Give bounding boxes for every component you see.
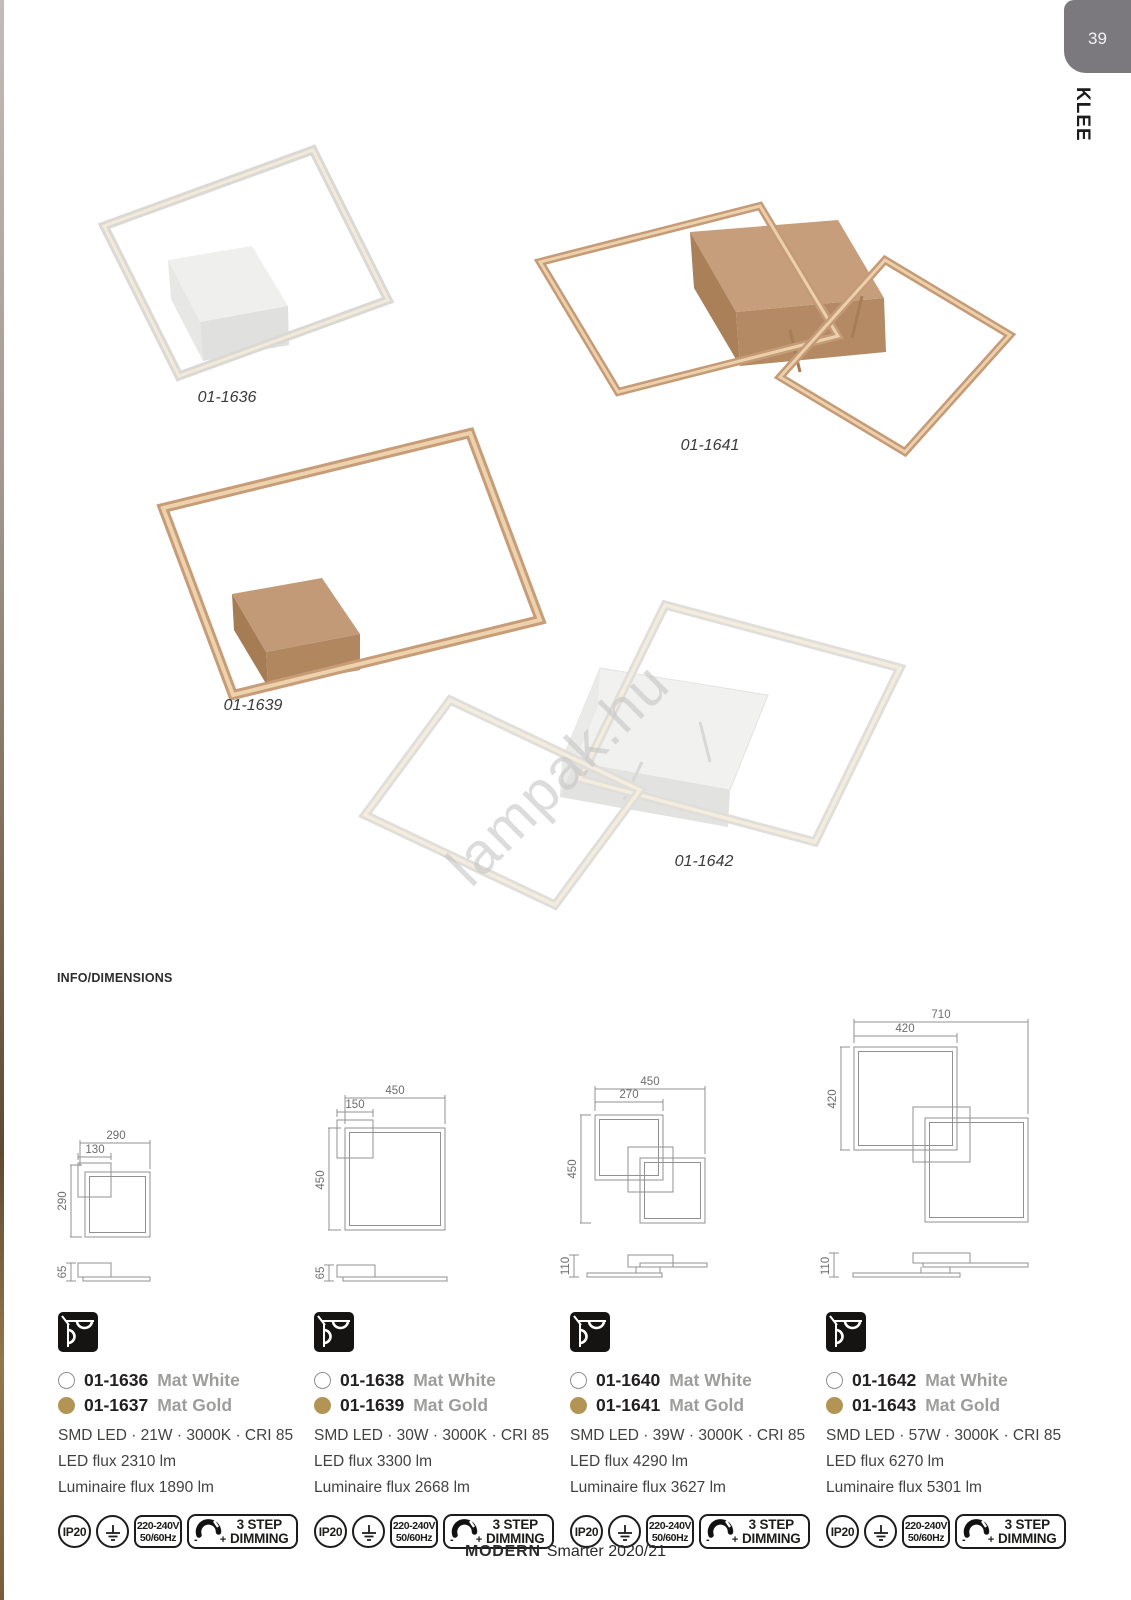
dimming-label: 3 STEP DIMMING <box>230 1518 289 1546</box>
product-image-01-1639 <box>163 433 540 695</box>
dim-1-total: 290 <box>106 1130 125 1142</box>
color-dot-gold <box>570 1397 587 1414</box>
catalog-page: 39 KLEE <box>0 0 1131 1600</box>
product-code: 01-1639 <box>340 1395 404 1416</box>
ground-icon <box>103 1522 123 1542</box>
ceiling-mount-icon <box>570 1312 610 1352</box>
product-image-01-1641 <box>540 206 1010 452</box>
product-code: 01-1636 <box>84 1370 148 1391</box>
product-label-01-1636: 01-1636 <box>198 389 257 406</box>
dimension-drawing-01-1640 <box>569 1086 707 1277</box>
spec-list: SMD LED · 39W · 3000K · CRI 85 LED flux … <box>570 1426 822 1498</box>
variant-row-white: 01-1636 Mat White <box>58 1370 310 1391</box>
spec-led-flux: LED flux 4290 lm <box>570 1452 822 1472</box>
spec-luminaire-flux: Luminaire flux 2668 lm <box>314 1478 566 1498</box>
dim-3-total: 450 <box>640 1076 659 1088</box>
dimmer-dial-icon: - + <box>194 1519 225 1545</box>
dimming-label: 3 STEP DIMMING <box>486 1518 545 1546</box>
variant-row-white: 01-1640 Mat White <box>570 1370 822 1391</box>
dim-1-depth: 65 <box>57 1266 69 1279</box>
dim-1-canopy: 130 <box>85 1144 104 1156</box>
spec-list: SMD LED · 21W · 3000K · CRI 85 LED flux … <box>58 1426 310 1498</box>
info-block-01-1640: 01-1640 Mat White 01-1641 Mat Gold SMD L… <box>570 1312 822 1549</box>
ceiling-mount-icon <box>314 1312 354 1352</box>
variant-row-white: 01-1638 Mat White <box>314 1370 566 1391</box>
ceiling-mount-icon <box>58 1312 98 1352</box>
finish-name: Mat White <box>669 1370 752 1391</box>
dim-3-height: 450 <box>567 1159 579 1178</box>
dim-4-height: 420 <box>827 1089 839 1108</box>
color-dot-white <box>826 1372 843 1389</box>
variant-row-gold: 01-1639 Mat Gold <box>314 1395 566 1416</box>
spec-led: SMD LED · 39W · 3000K · CRI 85 <box>570 1426 822 1446</box>
spec-luminaire-flux: Luminaire flux 5301 lm <box>826 1478 1078 1498</box>
finish-name: Mat White <box>157 1370 240 1391</box>
footer-brand: MODERN <box>465 1543 541 1560</box>
dimming-label: 3 STEP DIMMING <box>998 1518 1057 1546</box>
dimmer-dial-icon: - + <box>450 1519 481 1545</box>
ground-icon <box>615 1522 635 1542</box>
dim-4-total: 710 <box>931 1009 950 1021</box>
dimension-drawings: 290 130 290 65 450 150 450 65 450 270 45… <box>0 990 1131 1300</box>
product-code: 01-1643 <box>852 1395 916 1416</box>
product-code: 01-1642 <box>852 1370 916 1391</box>
color-dot-gold <box>826 1397 843 1414</box>
product-label-01-1639: 01-1639 <box>224 697 283 714</box>
ground-icon <box>871 1522 891 1542</box>
footer: MODERNSmarter 2020/21 <box>0 1543 1131 1561</box>
variant-row-gold: 01-1641 Mat Gold <box>570 1395 822 1416</box>
product-images: 01-1636 01-1641 01-1639 01-1642 lampak.h… <box>0 0 1131 950</box>
color-dot-gold <box>58 1397 75 1414</box>
color-dot-gold <box>314 1397 331 1414</box>
dimension-drawing-01-1636 <box>66 1140 150 1281</box>
dim-4-canopy: 420 <box>895 1023 914 1035</box>
dim-3-canopy: 270 <box>619 1089 638 1101</box>
ground-icon <box>359 1522 379 1542</box>
ceiling-mount-icon <box>826 1312 866 1352</box>
dim-2-canopy: 150 <box>345 1099 364 1111</box>
variant-row-white: 01-1642 Mat White <box>826 1370 1078 1391</box>
spec-list: SMD LED · 30W · 3000K · CRI 85 LED flux … <box>314 1426 566 1498</box>
dim-2-depth: 65 <box>315 1267 327 1280</box>
finish-name: Mat Gold <box>413 1395 488 1416</box>
dim-2-total: 450 <box>385 1085 404 1097</box>
product-label-01-1642: 01-1642 <box>675 853 734 870</box>
spec-luminaire-flux: Luminaire flux 3627 lm <box>570 1478 822 1498</box>
spec-list: SMD LED · 57W · 3000K · CRI 85 LED flux … <box>826 1426 1078 1498</box>
finish-name: Mat Gold <box>669 1395 744 1416</box>
dim-1-height: 290 <box>57 1191 69 1210</box>
spec-led: SMD LED · 30W · 3000K · CRI 85 <box>314 1426 566 1446</box>
dimmer-dial-icon: - + <box>706 1519 737 1545</box>
dimension-drawing-01-1642 <box>829 1019 1028 1277</box>
spec-luminaire-flux: Luminaire flux 1890 lm <box>58 1478 310 1498</box>
spec-led-flux: LED flux 2310 lm <box>58 1452 310 1472</box>
variant-row-gold: 01-1643 Mat Gold <box>826 1395 1078 1416</box>
dimmer-dial-icon: - + <box>962 1519 993 1545</box>
finish-name: Mat Gold <box>157 1395 232 1416</box>
info-block-01-1642: 01-1642 Mat White 01-1643 Mat Gold SMD L… <box>826 1312 1078 1549</box>
dim-3-depth: 110 <box>560 1257 572 1275</box>
product-code: 01-1641 <box>596 1395 660 1416</box>
product-label-01-1641: 01-1641 <box>681 437 740 454</box>
product-code: 01-1640 <box>596 1370 660 1391</box>
product-code: 01-1637 <box>84 1395 148 1416</box>
product-code: 01-1638 <box>340 1370 404 1391</box>
color-dot-white <box>58 1372 75 1389</box>
color-dot-white <box>314 1372 331 1389</box>
spec-led: SMD LED · 57W · 3000K · CRI 85 <box>826 1426 1078 1446</box>
info-block-01-1638: 01-1638 Mat White 01-1639 Mat Gold SMD L… <box>314 1312 566 1549</box>
section-title: INFO/DIMENSIONS <box>57 971 173 985</box>
dimming-label: 3 STEP DIMMING <box>742 1518 801 1546</box>
spec-led-flux: LED flux 3300 lm <box>314 1452 566 1472</box>
finish-name: Mat White <box>925 1370 1008 1391</box>
color-dot-white <box>570 1372 587 1389</box>
finish-name: Mat Gold <box>925 1395 1000 1416</box>
footer-edition: Smarter 2020/21 <box>547 1543 666 1560</box>
variant-row-gold: 01-1637 Mat Gold <box>58 1395 310 1416</box>
dimension-drawing-01-1638 <box>324 1095 447 1281</box>
finish-name: Mat White <box>413 1370 496 1391</box>
spec-led-flux: LED flux 6270 lm <box>826 1452 1078 1472</box>
dim-4-depth: 110 <box>820 1257 832 1275</box>
info-block-01-1636: 01-1636 Mat White 01-1637 Mat Gold SMD L… <box>58 1312 310 1549</box>
spec-led: SMD LED · 21W · 3000K · CRI 85 <box>58 1426 310 1446</box>
product-image-01-1636 <box>104 150 388 376</box>
dim-2-height: 450 <box>315 1170 327 1189</box>
